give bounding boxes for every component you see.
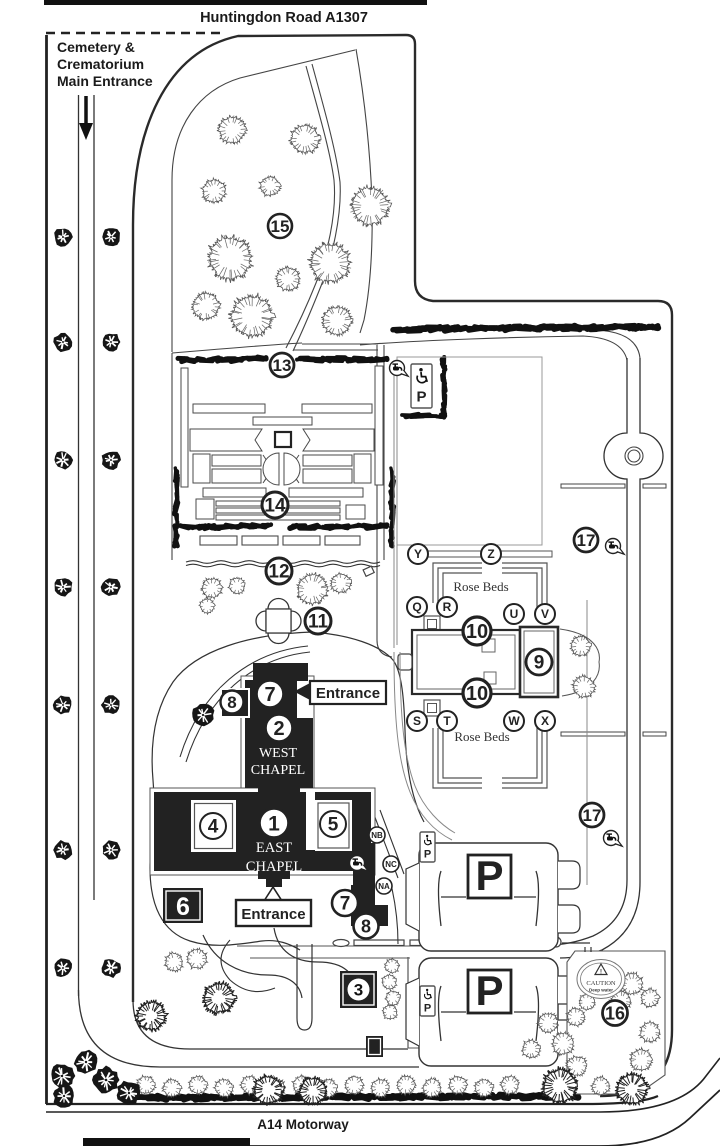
svg-text:P: P xyxy=(416,388,426,405)
svg-text:9: 9 xyxy=(534,653,545,674)
svg-text:WEST: WEST xyxy=(259,746,298,761)
svg-text:17: 17 xyxy=(583,806,602,825)
svg-text:X: X xyxy=(541,714,549,728)
svg-text:CHAPEL: CHAPEL xyxy=(246,859,302,875)
svg-text:T: T xyxy=(443,714,451,728)
svg-text:V: V xyxy=(541,607,549,621)
svg-text:8: 8 xyxy=(361,916,371,936)
svg-text:17: 17 xyxy=(577,531,596,550)
svg-text:Y: Y xyxy=(414,547,422,561)
svg-text:P: P xyxy=(475,852,503,899)
svg-text:16: 16 xyxy=(605,1003,625,1023)
svg-text:Main Entrance: Main Entrance xyxy=(57,73,153,89)
svg-text:P: P xyxy=(424,849,431,861)
svg-text:Entrance: Entrance xyxy=(241,906,305,923)
svg-text:Cemetery &: Cemetery & xyxy=(57,39,135,55)
svg-text:Huntingdon Road A1307: Huntingdon Road A1307 xyxy=(200,10,368,26)
svg-text:U: U xyxy=(510,607,519,621)
svg-text:8: 8 xyxy=(227,693,236,712)
svg-text:7: 7 xyxy=(340,894,351,915)
svg-text:1: 1 xyxy=(268,812,280,835)
svg-text:Z: Z xyxy=(487,547,494,561)
svg-text:S: S xyxy=(413,714,421,728)
svg-text:Rose Beds: Rose Beds xyxy=(453,579,508,594)
svg-text:CHAPEL: CHAPEL xyxy=(251,763,305,778)
svg-text:6: 6 xyxy=(176,893,190,921)
svg-text:P: P xyxy=(424,1003,431,1015)
svg-text:14: 14 xyxy=(264,496,286,517)
svg-text:4: 4 xyxy=(208,817,219,838)
svg-text:P: P xyxy=(475,967,503,1014)
svg-text:Crematorium: Crematorium xyxy=(57,56,144,72)
svg-text:10: 10 xyxy=(466,683,488,705)
svg-text:A14 Motorway: A14 Motorway xyxy=(257,1117,349,1132)
svg-text:7: 7 xyxy=(264,684,275,706)
svg-text:2: 2 xyxy=(273,718,284,740)
svg-text:13: 13 xyxy=(273,356,292,375)
svg-text:NC: NC xyxy=(385,860,397,869)
svg-text:Deep water: Deep water xyxy=(589,988,613,993)
svg-text:Q: Q xyxy=(412,600,421,614)
svg-text:W: W xyxy=(508,714,520,728)
svg-text:NA: NA xyxy=(378,882,390,891)
svg-text:R: R xyxy=(443,600,452,614)
svg-text:EAST: EAST xyxy=(256,840,292,856)
svg-text:Rose Beds: Rose Beds xyxy=(454,729,509,744)
svg-text:Entrance: Entrance xyxy=(316,685,380,702)
svg-text:15: 15 xyxy=(271,217,290,236)
svg-text:11: 11 xyxy=(308,612,329,633)
svg-text:5: 5 xyxy=(328,815,339,836)
svg-text:12: 12 xyxy=(268,562,289,583)
svg-text:10: 10 xyxy=(466,621,488,643)
svg-text:3: 3 xyxy=(354,981,363,1000)
svg-text:NB: NB xyxy=(371,831,383,840)
svg-text:CAUTION: CAUTION xyxy=(586,980,616,987)
svg-text:!: ! xyxy=(600,970,602,976)
